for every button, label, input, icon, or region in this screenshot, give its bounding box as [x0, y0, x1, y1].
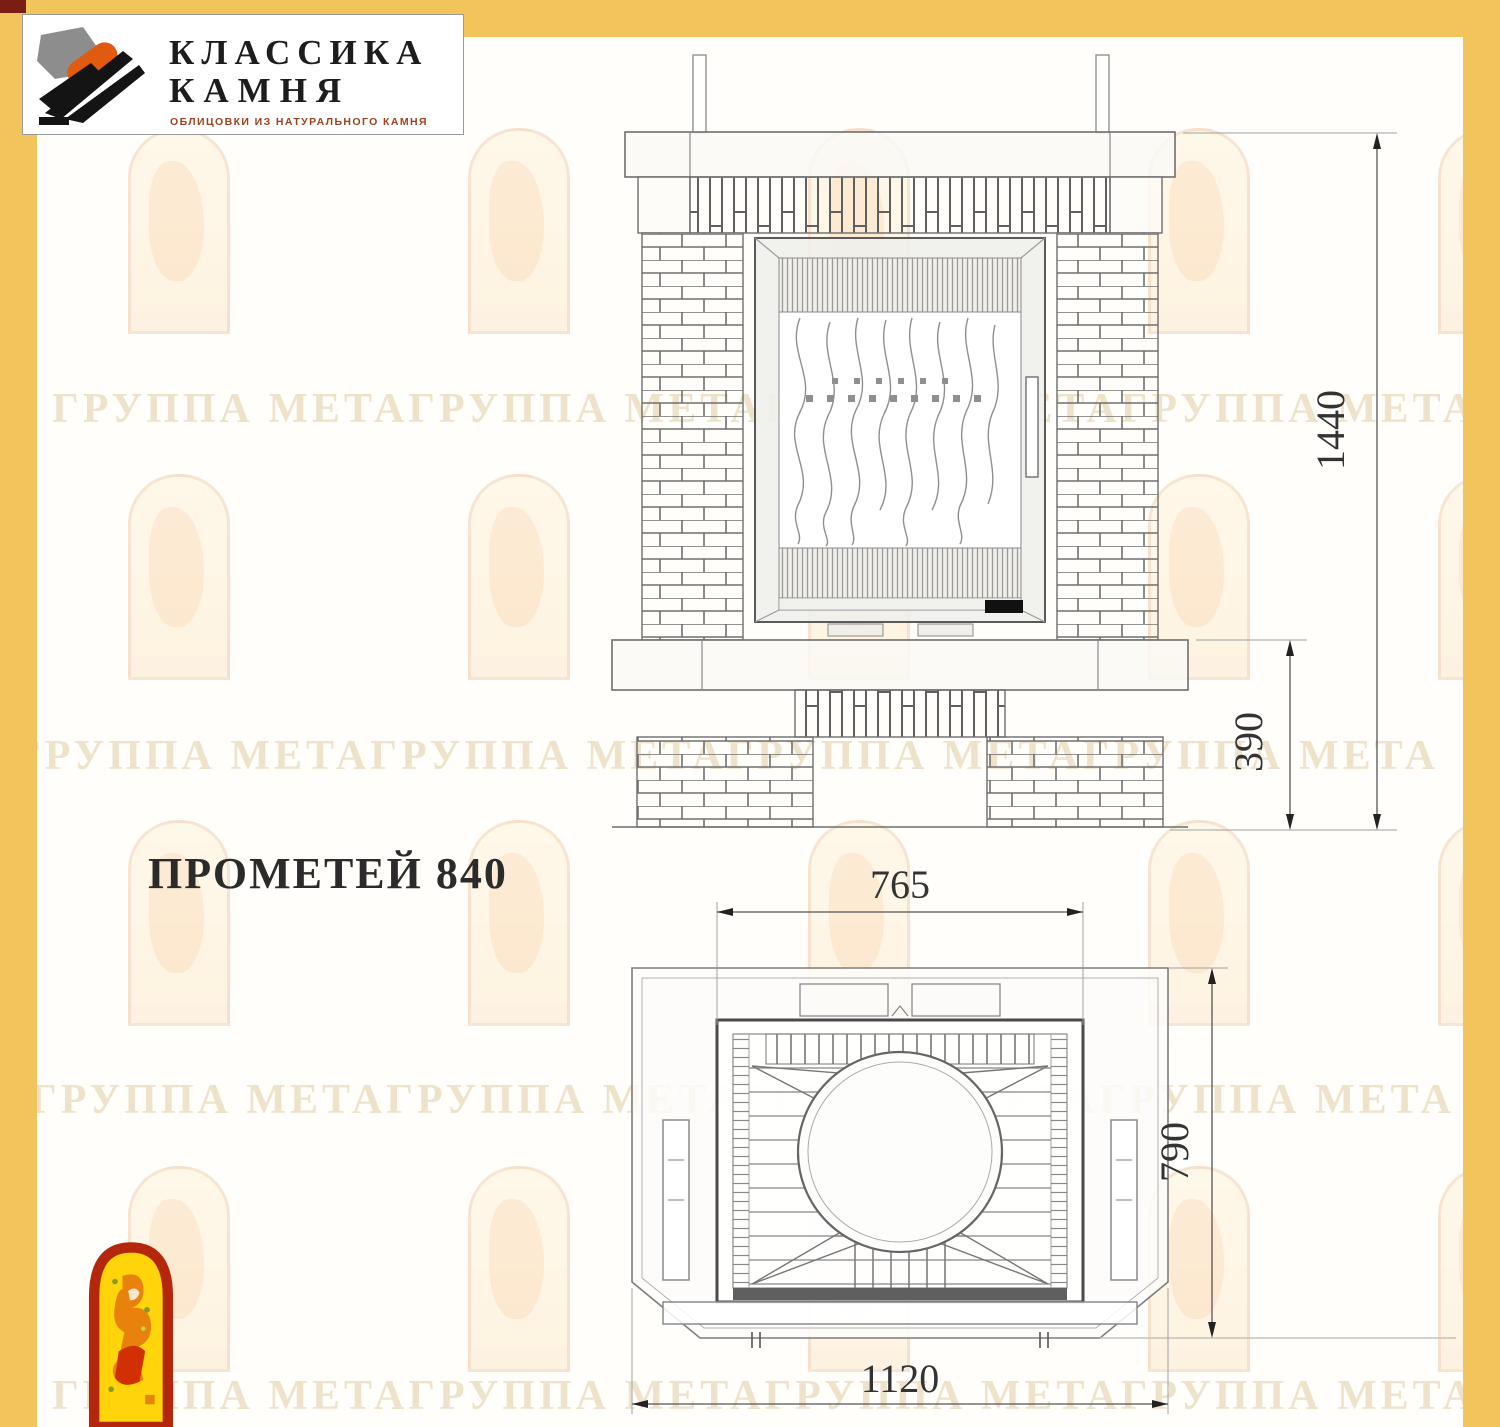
product-title: ПРОМЕТЕЙ 840 [148, 848, 508, 899]
front-view-drawing: 1440 390 [560, 40, 1460, 850]
hearth-shelf [612, 640, 1188, 690]
brand-badge [985, 600, 1023, 613]
dim-insert-width: 765 [870, 862, 930, 907]
meta-emblem [84, 1238, 178, 1427]
plan-insert [717, 1020, 1083, 1348]
dim-total-width: 1120 [861, 1356, 940, 1401]
watermark-arch [128, 128, 230, 334]
logo-subtitle: ОБЛИЦОВКИ ИЗ НАТУРАЛЬНОГО КАМНЯ [170, 116, 428, 128]
dim-base-height: 390 [1226, 712, 1271, 772]
door-handle [1026, 377, 1038, 477]
base-pedestals [612, 737, 1188, 827]
stone-logo-icon [31, 21, 166, 127]
lower-tile-frieze [795, 690, 1005, 737]
watermark-arch [468, 1166, 570, 1372]
mantel-shelf [625, 132, 1175, 177]
frame-right-bar [1463, 0, 1500, 1427]
watermark-arch [128, 474, 230, 680]
plan-view-drawing: 765 790 1120 [560, 860, 1460, 1427]
firebox-bottom-grill [779, 548, 1021, 598]
watermark-arch [468, 128, 570, 334]
logo-title-line2: КАМНЯ [169, 73, 350, 108]
logo-title-line1: КЛАССИКА [169, 35, 428, 70]
flue-opening [798, 1052, 1002, 1252]
firebird-emblem-icon [84, 1238, 178, 1427]
chimney-posts [693, 55, 1109, 133]
upper-tile-frieze [638, 177, 1162, 233]
front-view-dimensions: 1440 390 [1170, 133, 1397, 830]
frame-left-bar [0, 0, 37, 1427]
corner-chip [0, 0, 26, 13]
firebox-top-grill [779, 258, 1021, 312]
company-logo: КЛАССИКА КАМНЯ ОБЛИЦОВКИ ИЗ НАТУРАЛЬНОГО… [22, 14, 464, 135]
dim-total-height: 1440 [1308, 390, 1353, 470]
page: ГРУППА МЕТАГРУППА МЕТАГРУППА МЕТАГРУППА … [0, 0, 1500, 1427]
firebox-insert [755, 238, 1045, 636]
watermark-arch [468, 474, 570, 680]
dim-depth: 790 [1152, 1122, 1197, 1182]
